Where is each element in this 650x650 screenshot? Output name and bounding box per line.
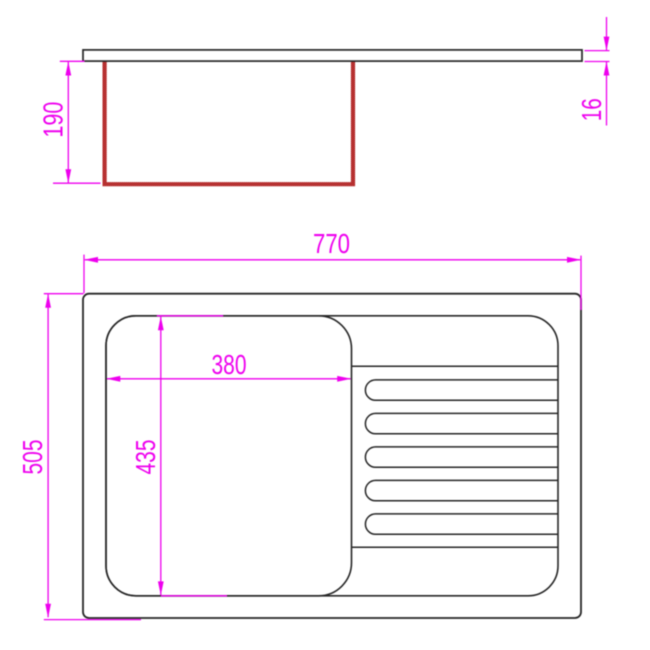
svg-text:770: 770: [313, 228, 350, 259]
svg-text:435: 435: [130, 440, 161, 475]
svg-text:16: 16: [576, 98, 607, 121]
svg-text:190: 190: [38, 102, 69, 138]
svg-text:505: 505: [17, 440, 48, 475]
svg-text:380: 380: [212, 349, 247, 380]
